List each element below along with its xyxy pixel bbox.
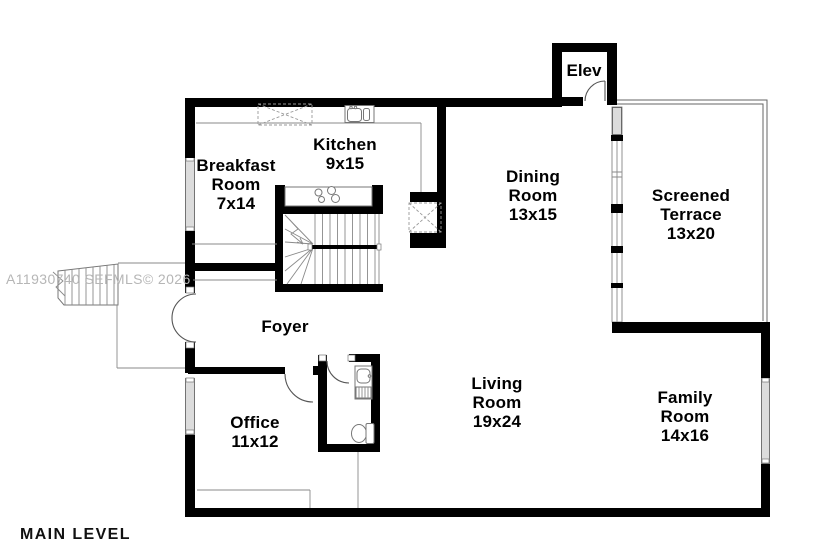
entry-double-door	[172, 294, 196, 342]
room-label-terrace: Screened Terrace 13x20	[626, 186, 756, 243]
mls-watermark: A11930740 SEFMLS© 2026	[6, 271, 191, 287]
bathroom-door	[327, 361, 349, 383]
room-dims: 11x12	[195, 432, 315, 451]
room-label-dining: Dining Room 13x15	[473, 167, 593, 224]
dining-terrace-window-wall	[611, 107, 623, 322]
cooktop-icon	[285, 187, 372, 207]
bath-sink-icon	[355, 366, 372, 399]
room-name-line: Room	[473, 186, 593, 205]
office-door	[285, 374, 313, 402]
floor-plan: Elev Breakfast Room 7x14 Kitchen 9x15 Di…	[0, 0, 840, 560]
room-name-line: Foyer	[235, 317, 335, 336]
room-dims: 13x20	[626, 224, 756, 243]
room-label-elev: Elev	[552, 61, 616, 81]
room-label-kitchen: Kitchen 9x15	[285, 135, 405, 173]
room-name-line: Kitchen	[285, 135, 405, 154]
room-label-living: Living Room 19x24	[437, 374, 557, 431]
room-name-line: Room	[176, 175, 296, 194]
room-label-office: Office 11x12	[195, 413, 315, 451]
room-name-line: Living	[437, 374, 557, 393]
room-name-line: Terrace	[626, 205, 756, 224]
room-name-line: Dining	[473, 167, 593, 186]
kitchen-sink-icon	[345, 106, 374, 123]
room-dims: 19x24	[437, 412, 557, 431]
room-label-family: Family Room 14x16	[625, 388, 745, 445]
level-title: MAIN LEVEL	[20, 526, 131, 544]
room-label-breakfast: Breakfast Room 7x14	[176, 156, 296, 213]
room-name-line: Breakfast	[176, 156, 296, 175]
room-name-line: Room	[625, 407, 745, 426]
elevator-door	[585, 81, 605, 101]
room-name-line: Room	[437, 393, 557, 412]
room-label-foyer: Foyer	[235, 317, 335, 336]
room-dims: 7x14	[176, 194, 296, 213]
room-name-line: Office	[195, 413, 315, 432]
room-name-line: Screened	[626, 186, 756, 205]
room-dims: 9x15	[285, 154, 405, 173]
room-dims: 13x15	[473, 205, 593, 224]
kitchen-hood-icon	[258, 104, 312, 125]
room-dims: 14x16	[625, 426, 745, 445]
room-name-line: Family	[625, 388, 745, 407]
staircase	[285, 214, 381, 284]
refrigerator-icon	[409, 203, 441, 232]
toilet-icon	[352, 424, 375, 444]
